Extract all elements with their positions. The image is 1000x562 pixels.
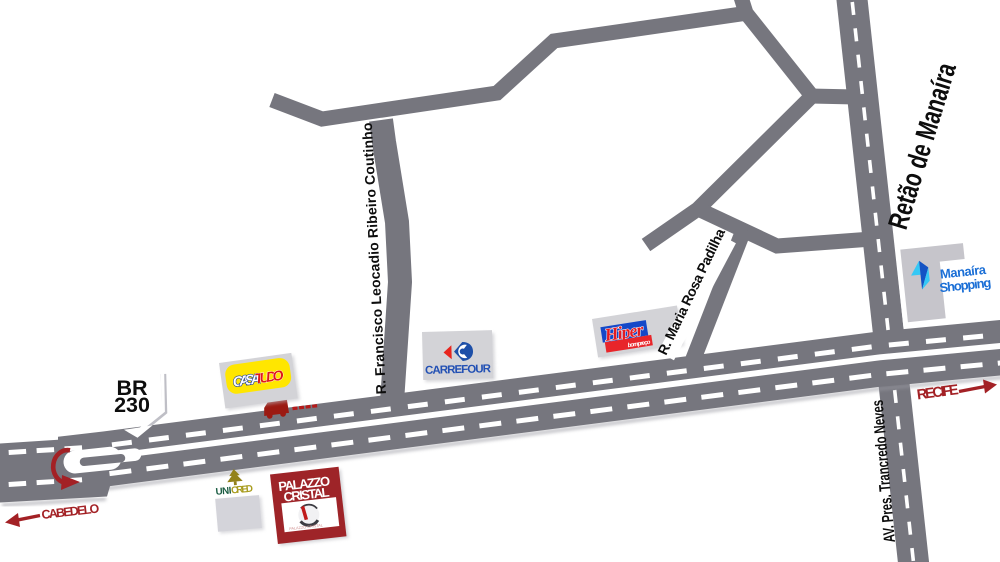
- svg-text:CARREFOUR: CARREFOUR: [425, 363, 492, 377]
- svg-text:230: 230: [114, 393, 150, 417]
